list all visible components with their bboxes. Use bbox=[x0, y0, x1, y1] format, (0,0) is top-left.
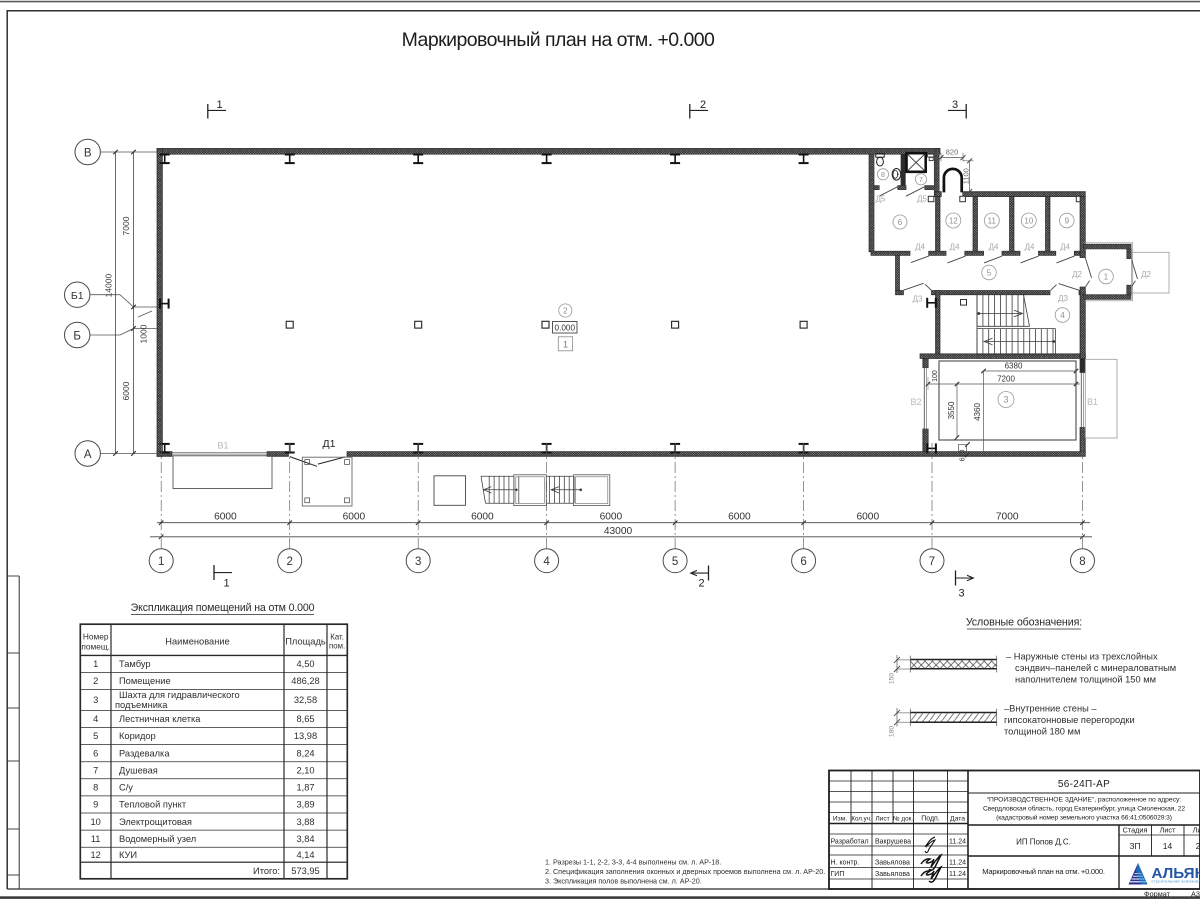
svg-text:Площадь: Площадь bbox=[285, 637, 326, 647]
svg-text:610: 610 bbox=[960, 450, 967, 462]
svg-text:1. Разрезы 1-1, 2-2, 3-3, 4-4: 1. Разрезы 1-1, 2-2, 3-3, 4-4 выполнены … bbox=[545, 858, 721, 867]
svg-text:12: 12 bbox=[949, 216, 958, 225]
svg-text:11.24: 11.24 bbox=[949, 860, 966, 867]
svg-text:Д3: Д3 bbox=[913, 295, 923, 304]
svg-text:6000: 6000 bbox=[343, 512, 366, 523]
svg-text:помещ.: помещ. bbox=[81, 642, 110, 652]
svg-text:10: 10 bbox=[1024, 216, 1033, 225]
svg-text:11: 11 bbox=[91, 834, 101, 844]
svg-text:В1: В1 bbox=[217, 441, 228, 451]
svg-text:1: 1 bbox=[93, 659, 98, 669]
svg-text:14000: 14000 bbox=[104, 274, 114, 298]
svg-text:строительная компания: строительная компания bbox=[1152, 879, 1200, 884]
svg-text:Д5: Д5 bbox=[876, 195, 886, 204]
svg-text:(кадастровый номер земельного: (кадастровый номер земельного участка 66… bbox=[996, 814, 1172, 822]
svg-text:3,84: 3,84 bbox=[296, 834, 314, 844]
svg-text:КУИ: КУИ bbox=[119, 850, 137, 860]
svg-text:1: 1 bbox=[158, 556, 164, 568]
svg-text:ЗП: ЗП bbox=[1129, 841, 1140, 851]
svg-text:– Наружные стены из трехслойны: – Наружные стены из трехслойных bbox=[1006, 652, 1158, 662]
svg-text:8,24: 8,24 bbox=[296, 748, 314, 758]
svg-text:ИП Попов Д.С.: ИП Попов Д.С. bbox=[1016, 838, 1071, 847]
svg-text:Лист: Лист bbox=[1160, 825, 1177, 834]
svg-text:1: 1 bbox=[1104, 272, 1109, 281]
svg-text:Душевая: Душевая bbox=[119, 766, 158, 776]
svg-text:13,98: 13,98 bbox=[294, 731, 317, 741]
svg-text:Ли: Ли bbox=[1193, 825, 1200, 834]
svg-text:Н. контр.: Н. контр. bbox=[831, 860, 860, 867]
svg-text:3: 3 bbox=[415, 556, 421, 568]
svg-text:180: 180 bbox=[889, 726, 896, 738]
svg-text:8,65: 8,65 bbox=[296, 714, 314, 724]
svg-text:Д2: Д2 bbox=[1141, 270, 1151, 279]
svg-text:Коридор: Коридор bbox=[119, 731, 156, 741]
svg-text:5: 5 bbox=[987, 268, 992, 277]
svg-text:1: 1 bbox=[563, 339, 568, 349]
svg-text:Тамбур: Тамбур bbox=[119, 659, 151, 669]
svg-text:2: 2 bbox=[286, 556, 292, 568]
svg-text:Изм.: Изм. bbox=[833, 816, 847, 823]
svg-text:Формат: Формат bbox=[1144, 890, 1171, 899]
svg-text:Маркировочный план на отм. +0.: Маркировочный план на отм. +0.000 bbox=[402, 29, 715, 51]
svg-text:5: 5 bbox=[93, 731, 98, 741]
svg-text:Завьялова: Завьялова bbox=[875, 871, 910, 878]
svg-text:3: 3 bbox=[1003, 395, 1008, 405]
svg-text:Вакрушева: Вакрушева bbox=[875, 839, 911, 846]
svg-text:100: 100 bbox=[932, 370, 939, 382]
svg-text:гипсокатонновые перегородки: гипсокатонновые перегородки bbox=[1004, 715, 1135, 725]
svg-text:150: 150 bbox=[889, 673, 896, 685]
svg-text:В1: В1 bbox=[1087, 397, 1098, 407]
svg-text:3: 3 bbox=[958, 588, 964, 600]
svg-text:4,14: 4,14 bbox=[296, 850, 314, 860]
svg-text:4: 4 bbox=[543, 556, 550, 568]
svg-text:10: 10 bbox=[90, 817, 100, 827]
svg-text:“ПРОИЗВОДСТВЕННОЕ ЗДАНИЕ”, рас: “ПРОИЗВОДСТВЕННОЕ ЗДАНИЕ”, расположенное… bbox=[987, 797, 1181, 804]
svg-text:11.24: 11.24 bbox=[949, 839, 966, 846]
svg-text:11.24: 11.24 bbox=[949, 871, 966, 878]
svg-text:4: 4 bbox=[1060, 311, 1065, 320]
svg-text:6000: 6000 bbox=[121, 381, 131, 400]
svg-text:Разработал: Разработал bbox=[831, 838, 869, 846]
svg-text:56-24П-АР: 56-24П-АР bbox=[1058, 779, 1110, 790]
svg-text:32,58: 32,58 bbox=[294, 695, 317, 705]
svg-text:толщиной 180 мм: толщиной 180 мм bbox=[1004, 727, 1080, 737]
svg-text:Экспликация помещений на отм 0: Экспликация помещений на отм 0.000 bbox=[131, 602, 315, 614]
svg-text:9: 9 bbox=[1065, 216, 1070, 225]
svg-text:5: 5 bbox=[672, 556, 678, 568]
svg-text:573,95: 573,95 bbox=[291, 866, 319, 876]
svg-text:–Внутренние стены –: –Внутренние стены – bbox=[1004, 704, 1097, 714]
svg-text:Номер: Номер bbox=[83, 632, 109, 642]
svg-text:Д3: Д3 bbox=[1058, 294, 1068, 303]
svg-text:12: 12 bbox=[90, 850, 100, 860]
svg-text:сэндвич–панелей с минераловатн: сэндвич–панелей с минераловатным bbox=[1015, 663, 1176, 673]
svg-text:Подп.: Подп. bbox=[921, 816, 940, 823]
svg-text:6380: 6380 bbox=[1005, 361, 1023, 370]
svg-text:ГИП: ГИП bbox=[831, 871, 845, 878]
svg-text:486,28: 486,28 bbox=[291, 676, 319, 686]
svg-text:Тепловой пункт: Тепловой пункт bbox=[119, 800, 187, 810]
svg-text:8: 8 bbox=[881, 172, 885, 179]
svg-text:4,50: 4,50 bbox=[296, 659, 314, 669]
svg-text:2,10: 2,10 bbox=[296, 766, 314, 776]
svg-text:2: 2 bbox=[1196, 841, 1200, 851]
svg-text:Лист: Лист bbox=[875, 816, 889, 823]
svg-text:3,89: 3,89 bbox=[296, 800, 314, 810]
svg-text:Д4: Д4 bbox=[1025, 242, 1035, 251]
svg-text:подъемника: подъемника bbox=[115, 700, 168, 710]
svg-text:7000: 7000 bbox=[121, 216, 131, 235]
svg-text:6000: 6000 bbox=[471, 512, 494, 523]
svg-text:№ док.: № док. bbox=[893, 816, 913, 823]
svg-text:1: 1 bbox=[223, 578, 229, 590]
svg-text:Помещение: Помещение bbox=[119, 676, 171, 686]
svg-text:Д1: Д1 bbox=[323, 438, 336, 450]
svg-text:С/у: С/у bbox=[119, 783, 133, 793]
svg-text:3550: 3550 bbox=[947, 401, 956, 419]
svg-text:Д4: Д4 bbox=[989, 242, 999, 251]
svg-text:6000: 6000 bbox=[728, 512, 751, 523]
svg-text:3. Экспликация полов выполнена: 3. Экспликация полов выполнена см. л. АР… bbox=[545, 877, 702, 886]
svg-text:6000: 6000 bbox=[600, 512, 623, 523]
svg-text:2: 2 bbox=[698, 578, 704, 590]
svg-text:Завьялова: Завьялова bbox=[875, 860, 910, 867]
svg-text:0.000: 0.000 bbox=[555, 323, 576, 332]
svg-text:3,88: 3,88 bbox=[296, 817, 314, 827]
svg-text:3: 3 bbox=[952, 99, 958, 111]
svg-text:Свердловская область, город Ек: Свердловская область, город Екатеринбург… bbox=[983, 805, 1185, 813]
svg-text:Маркировочный план на отм. +0.: Маркировочный план на отм. +0.000. bbox=[982, 867, 1105, 876]
svg-text:Стадия: Стадия bbox=[1123, 825, 1148, 834]
svg-text:6: 6 bbox=[898, 218, 903, 227]
svg-text:Кол.уч.: Кол.уч. bbox=[851, 816, 872, 823]
svg-text:2: 2 bbox=[700, 99, 706, 111]
svg-text:11: 11 bbox=[988, 216, 997, 225]
svg-text:8: 8 bbox=[1079, 556, 1085, 568]
svg-text:1000: 1000 bbox=[139, 324, 149, 343]
svg-text:пом.: пом. bbox=[329, 642, 345, 651]
svg-text:Дата: Дата bbox=[950, 816, 965, 823]
svg-text:4360: 4360 bbox=[973, 403, 982, 421]
svg-text:наполнителем толщиной 150 мм: наполнителем толщиной 150 мм bbox=[1015, 675, 1156, 685]
svg-text:Д5: Д5 bbox=[917, 195, 927, 204]
svg-text:4: 4 bbox=[93, 714, 98, 724]
svg-text:6000: 6000 bbox=[856, 512, 879, 523]
svg-text:7: 7 bbox=[93, 766, 98, 776]
svg-text:Шахта для гидравлического: Шахта для гидравлического bbox=[119, 690, 240, 700]
svg-text:43000: 43000 bbox=[604, 526, 633, 537]
svg-text:Электрощитовая: Электрощитовая bbox=[119, 817, 192, 827]
svg-text:Д4: Д4 bbox=[1060, 242, 1070, 251]
svg-text:Д4: Д4 bbox=[915, 242, 925, 251]
svg-text:Б: Б bbox=[73, 330, 81, 342]
svg-text:Условные обозначения:: Условные обозначения: bbox=[966, 617, 1082, 629]
svg-text:7000: 7000 bbox=[996, 512, 1019, 523]
svg-text:Кат.: Кат. bbox=[330, 633, 344, 642]
svg-text:В: В bbox=[84, 147, 92, 159]
svg-text:2: 2 bbox=[93, 676, 98, 686]
svg-text:6000: 6000 bbox=[214, 512, 237, 523]
svg-text:2: 2 bbox=[563, 306, 568, 315]
svg-text:6: 6 bbox=[800, 556, 806, 568]
svg-text:Водомерный узел: Водомерный узел bbox=[119, 834, 196, 844]
svg-text:8: 8 bbox=[93, 783, 98, 793]
svg-text:1,87: 1,87 bbox=[296, 783, 314, 793]
svg-text:6: 6 bbox=[93, 748, 98, 758]
svg-text:Д2: Д2 bbox=[1072, 270, 1082, 279]
svg-text:Раздевалка: Раздевалка bbox=[119, 748, 170, 758]
svg-text:А3: А3 bbox=[1191, 890, 1200, 899]
svg-text:14: 14 bbox=[1163, 841, 1173, 851]
svg-text:Лестничная клетка: Лестничная клетка bbox=[119, 714, 201, 724]
svg-text:9: 9 bbox=[93, 800, 98, 810]
svg-text:А: А bbox=[84, 449, 92, 461]
svg-text:7200: 7200 bbox=[997, 374, 1015, 383]
svg-text:2. Спецификация заполнения око: 2. Спецификация заполнения оконных и две… bbox=[545, 867, 825, 876]
svg-text:820: 820 bbox=[946, 147, 959, 156]
svg-text:7: 7 bbox=[919, 177, 923, 184]
svg-text:В2: В2 bbox=[910, 397, 921, 407]
svg-text:Наименование: Наименование bbox=[165, 637, 229, 647]
svg-text:3: 3 bbox=[93, 695, 98, 705]
svg-text:1100: 1100 bbox=[961, 168, 970, 184]
svg-text:Д4: Д4 bbox=[950, 242, 960, 251]
svg-text:Итого:: Итого: bbox=[253, 866, 280, 876]
svg-text:7: 7 bbox=[929, 556, 935, 568]
svg-text:1: 1 bbox=[216, 99, 222, 111]
svg-text:Б1: Б1 bbox=[71, 290, 84, 302]
